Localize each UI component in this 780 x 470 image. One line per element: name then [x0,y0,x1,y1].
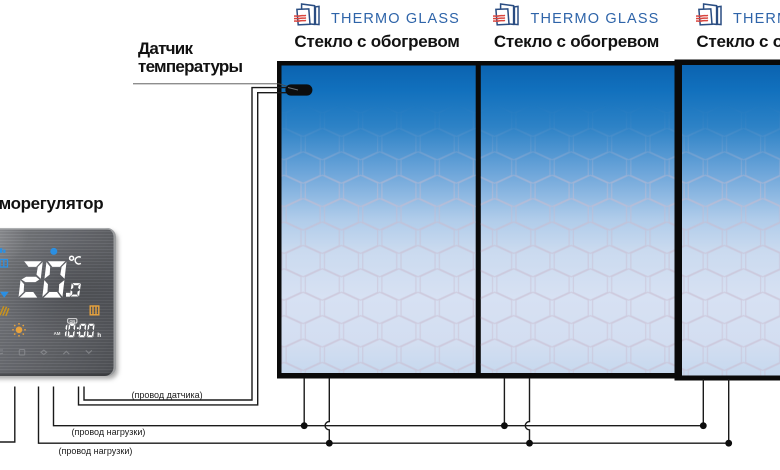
svg-text:AM: AM [54,331,61,336]
svg-text:h: h [97,331,101,338]
svg-text:ON: ON [70,319,76,323]
